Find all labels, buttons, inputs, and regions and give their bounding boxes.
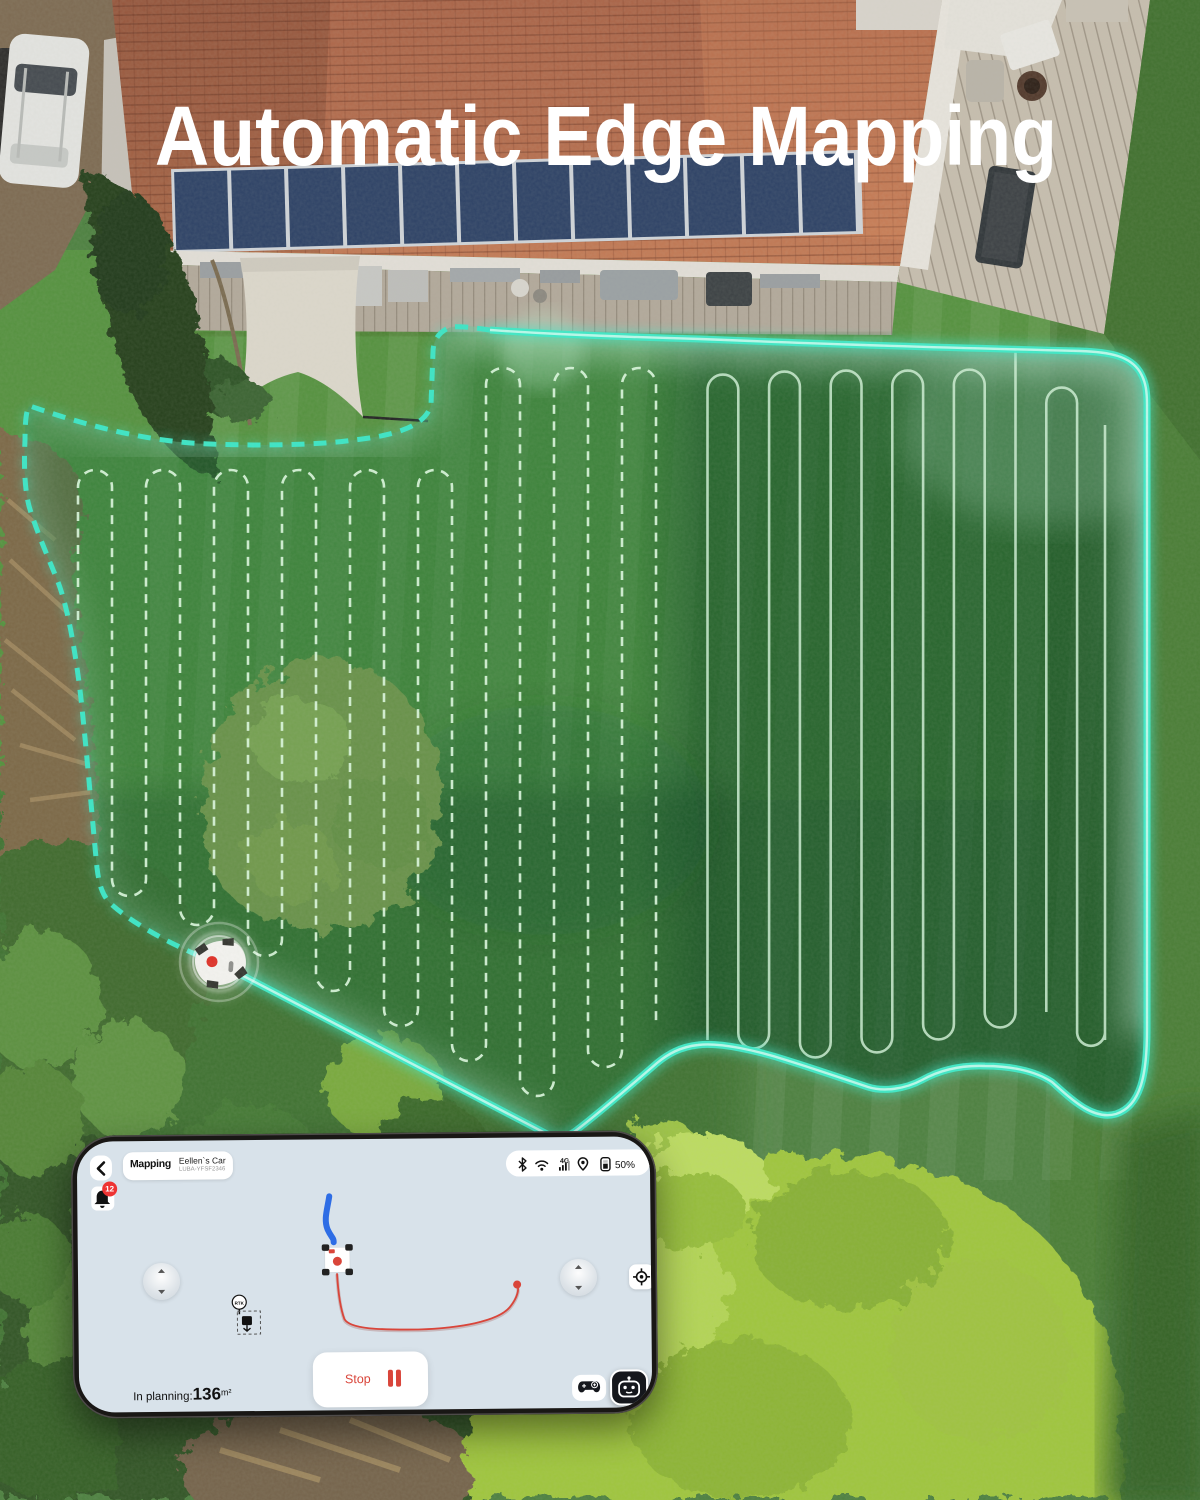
svg-text:RTK: RTK (235, 1301, 245, 1306)
